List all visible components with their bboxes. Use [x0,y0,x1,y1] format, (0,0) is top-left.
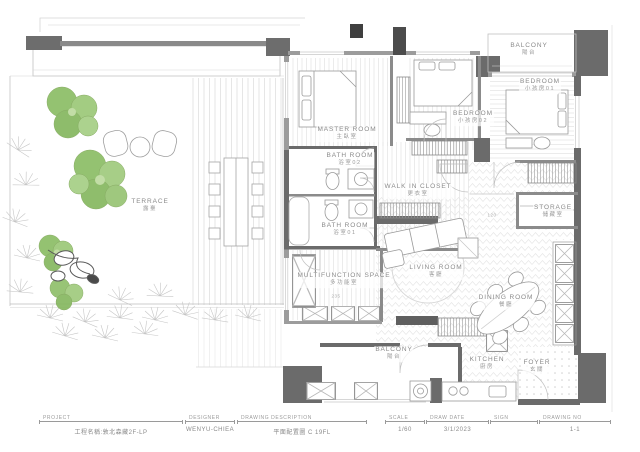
wall-block [26,36,62,50]
floorplan-sheet: TERRACE露臺 MASTER ROOM主臥室 BATH ROOM浴室02 B… [0,0,640,452]
dimension-label: 120 [487,213,496,218]
title-block: PROJECT 工程名稱:敦北森藏2F-LP DESIGNER WENYU-CH… [0,421,640,447]
wall-block [266,38,290,56]
room-label-multifunction-space: MULTIFUNCTION SPACE多功能室 [296,272,391,288]
room-label-balcony-bottom: BALCONY陽台 [374,346,413,362]
titleblock-field-scale: SCALE 1/60 [386,421,424,440]
dimension-label: 235 [331,294,340,299]
room-label-living-room: LIVING ROOM客廳 [408,264,463,280]
room-label-walk-in-closet: WALK IN CLOSET更衣室 [384,183,453,199]
terrace-area [2,18,305,367]
terrace-planter-band [33,46,280,76]
room-label-terrace: TERRACE露臺 [130,198,169,214]
wall-strip [60,41,268,46]
room-label-master-room: MASTER ROOM主臥室 [316,126,377,142]
titleblock-field-drawing-description: DRAWING DESCRIPTION 平面配置圖 C 19FL [238,421,366,440]
room-label-bedroom-01: BEDROOM小孩房01 [519,78,561,94]
titleblock-field-sign: SIGN [491,421,537,440]
room-label-bath-room-02: BATH ROOM浴室02 [326,152,375,168]
terrace-lounge-furniture [101,128,178,158]
room-label-storage: STORAGE儲藏室 [533,204,573,220]
room-label-bedroom-02: BEDROOM小孩房02 [452,110,494,126]
room-label-foyer: FOYER玄關 [523,359,552,375]
titleblock-field-drawing-no: DRAWING NO 1-1 [540,421,610,440]
titleblock-field-designer: DESIGNER WENYU-CHIEA [186,421,234,440]
room-label-bath-room-01: BATH ROOM浴室01 [321,222,370,238]
kitchen-fixtures [410,381,516,401]
titleblock-field-project: PROJECT 工程名稱:敦北森藏2F-LP [40,421,182,440]
titleblock-field-draw-date: DRAW DATE 3/1/2023 [427,421,488,440]
room-label-dining-room: DINING ROOM餐廳 [478,294,535,310]
room-label-balcony-top: BALCONY陽台 [509,42,548,58]
room-label-kitchen: KITCHEN廚房 [469,356,506,372]
